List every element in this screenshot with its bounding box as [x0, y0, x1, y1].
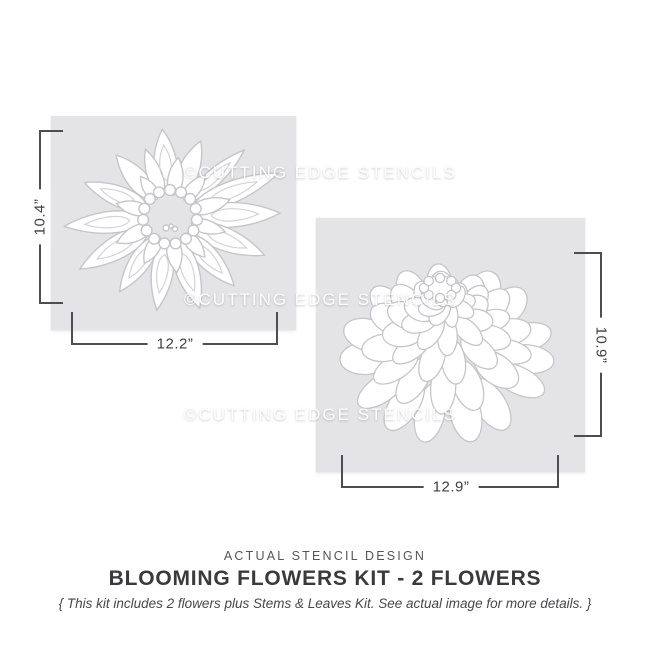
dim-cap-zinnia-height-bottom — [574, 435, 602, 437]
dim-cap-anemone-width-left — [71, 312, 73, 345]
zinnia-flower-graphic — [316, 218, 585, 472]
dim-cap-zinnia-width-left — [341, 455, 343, 488]
caption-block: ACTUAL STENCIL DESIGN BLOOMING FLOWERS K… — [0, 549, 650, 611]
stencil-square-anemone — [51, 116, 296, 330]
stencil-square-zinnia — [316, 218, 585, 472]
dim-label-anemone-width: 12.2” — [148, 335, 203, 354]
anemone-flower-graphic — [51, 116, 296, 330]
dim-cap-zinnia-width-right — [557, 455, 559, 488]
caption-note: { This kit includes 2 flowers plus Stems… — [0, 596, 650, 611]
dim-label-zinnia-height: 10.9” — [592, 318, 611, 373]
dim-cap-zinnia-height-top — [574, 252, 602, 254]
dim-label-zinnia-width: 12.9” — [424, 478, 479, 497]
dim-cap-anemone-height-top — [39, 130, 63, 132]
caption-kicker: ACTUAL STENCIL DESIGN — [0, 549, 650, 563]
product-title: BLOOMING FLOWERS KIT - 2 FLOWERS — [0, 567, 650, 591]
product-image-stage: ©CUTTING EDGE STENCILS ©CUTTING EDGE STE… — [0, 0, 650, 650]
dim-label-anemone-height: 10.4” — [31, 190, 50, 245]
dim-cap-anemone-height-bottom — [39, 302, 63, 304]
dim-cap-anemone-width-right — [276, 312, 278, 345]
